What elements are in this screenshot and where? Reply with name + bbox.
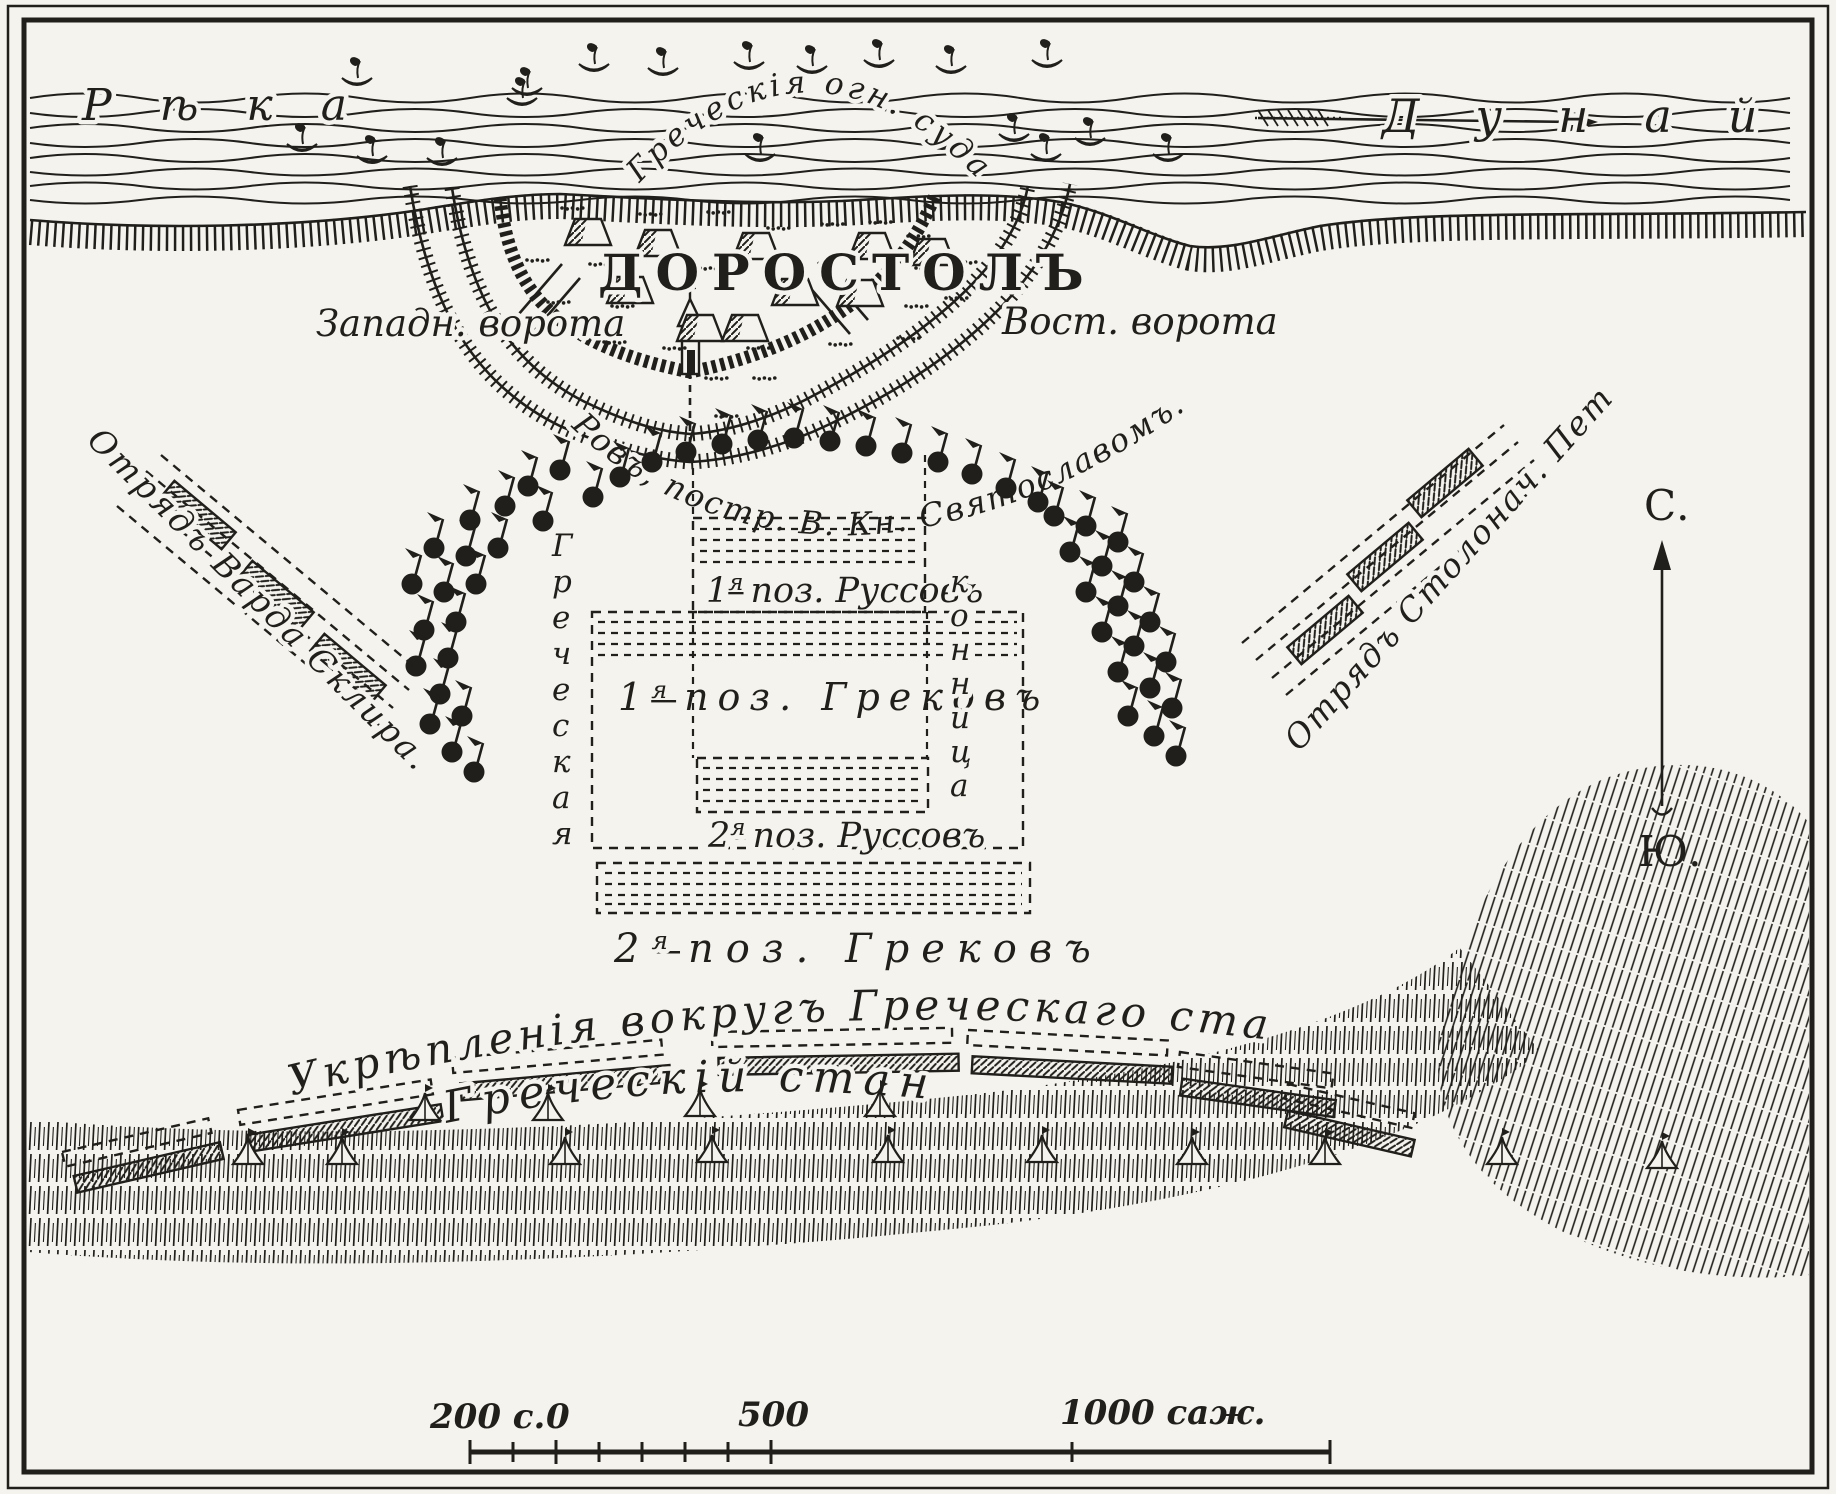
scale-200-label: 200 с. xyxy=(429,1397,545,1437)
greek2-label: 2япоз. Грековъ xyxy=(613,926,1103,972)
greek1-label: 1япоз. Грековъ xyxy=(618,675,1049,719)
cavalry-word-left: Греческая xyxy=(551,528,574,852)
scale-bar: 200 с. 0 500 1000 саж. xyxy=(429,1393,1330,1464)
detachment-skleros: Отрядъ Варда Склира. xyxy=(80,420,440,780)
scale-0-label: 0 xyxy=(546,1397,570,1437)
river-danube: Рѣка Дунай Греческія огн. суда xyxy=(30,39,1813,259)
east-gate-label: Вост. ворота xyxy=(1001,300,1278,343)
river-name-right: Дунай xyxy=(1380,89,1813,143)
city-dorostol: ДОРОСТОЛЪ Западн. ворота Вост. ворота Ро… xyxy=(316,184,1278,544)
scale-1000-label: 1000 саж. xyxy=(1060,1393,1265,1433)
detachment-skleros-label: Отрядъ Варда Склира. xyxy=(80,420,440,780)
scale-500-label: 500 xyxy=(738,1395,809,1435)
rus2-label: 2япоз. Руссовъ xyxy=(707,815,985,856)
rus1-label: 1япоз. Руссовъ xyxy=(706,570,983,611)
battle-map-page: Рѣка Дунай Греческія огн. суда xyxy=(0,0,1836,1494)
cavalry-right-wing xyxy=(1044,480,1187,767)
west-gate-label: Западн. ворота xyxy=(316,302,625,345)
greek-second-position: 2япоз. Грековъ xyxy=(597,863,1103,972)
camp-hill xyxy=(1438,765,1810,1278)
rus-second-position: 2япоз. Руссовъ xyxy=(697,758,985,856)
cavalry-left-wing xyxy=(402,434,571,783)
river-name-left: Рѣка xyxy=(81,80,395,131)
cavalry-word-right: конница xyxy=(950,564,972,804)
dorostol-battle-map: Рѣка Дунай Греческія огн. суда xyxy=(0,0,1836,1494)
city-name: ДОРОСТОЛЪ xyxy=(598,243,1097,302)
compass-north-label: С. xyxy=(1644,481,1690,530)
compass-arrowhead xyxy=(1653,540,1671,570)
